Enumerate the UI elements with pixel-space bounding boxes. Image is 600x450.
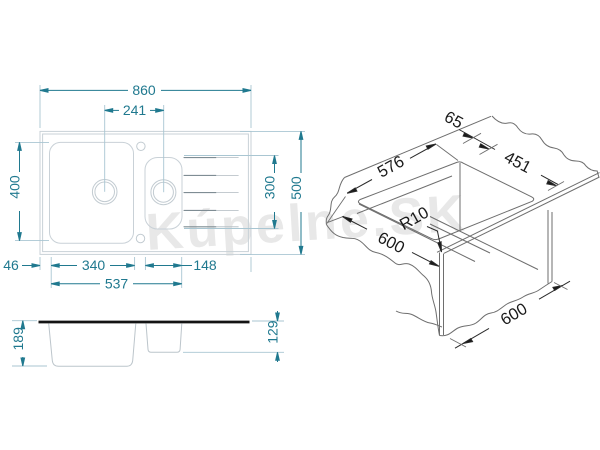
svg-text:340: 340 [82,257,106,273]
svg-text:148: 148 [193,257,217,273]
svg-text:500: 500 [288,176,304,200]
svg-text:300: 300 [262,176,278,200]
svg-text:537: 537 [105,275,129,291]
svg-text:860: 860 [132,82,156,98]
svg-text:576: 576 [375,152,408,181]
svg-text:451: 451 [501,148,534,177]
svg-text:129: 129 [265,320,281,344]
svg-text:600: 600 [498,300,531,329]
svg-text:46: 46 [3,257,19,273]
svg-text:241: 241 [123,102,147,118]
svg-text:189: 189 [10,327,26,351]
svg-text:400: 400 [7,175,23,199]
